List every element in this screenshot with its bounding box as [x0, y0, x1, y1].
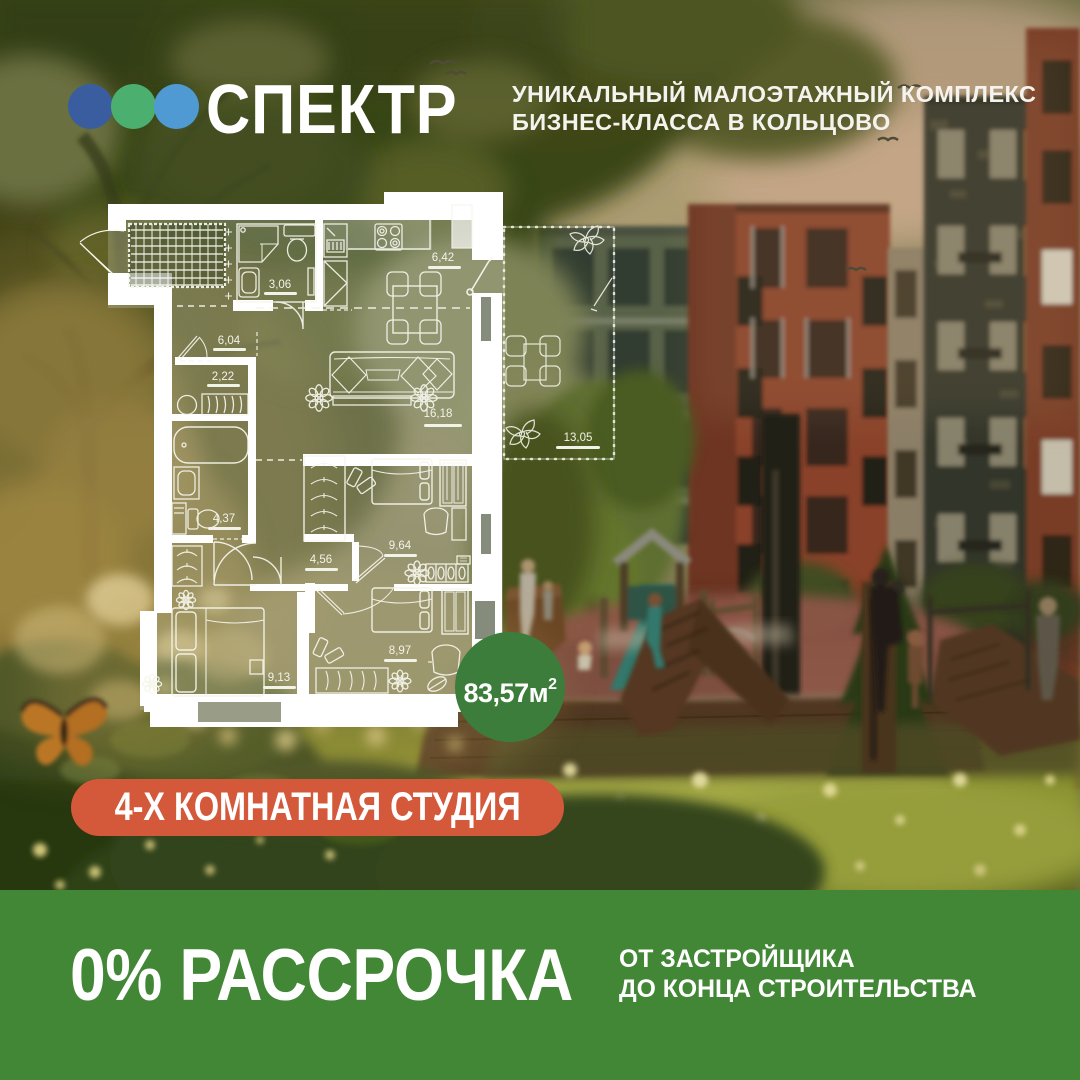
svg-text:9,13: 9,13 [268, 672, 290, 684]
svg-text:16,18: 16,18 [424, 408, 453, 420]
svg-text:9,64: 9,64 [389, 540, 412, 552]
svg-text:6,42: 6,42 [432, 252, 454, 264]
svg-text:2,22: 2,22 [212, 371, 234, 383]
svg-text:6,04: 6,04 [218, 335, 241, 347]
svg-text:8,97: 8,97 [389, 645, 411, 657]
svg-text:4,37: 4,37 [213, 513, 235, 525]
svg-text:3,06: 3,06 [269, 279, 291, 291]
svg-text:13,05: 13,05 [564, 432, 593, 444]
svg-text:4,56: 4,56 [310, 554, 332, 566]
